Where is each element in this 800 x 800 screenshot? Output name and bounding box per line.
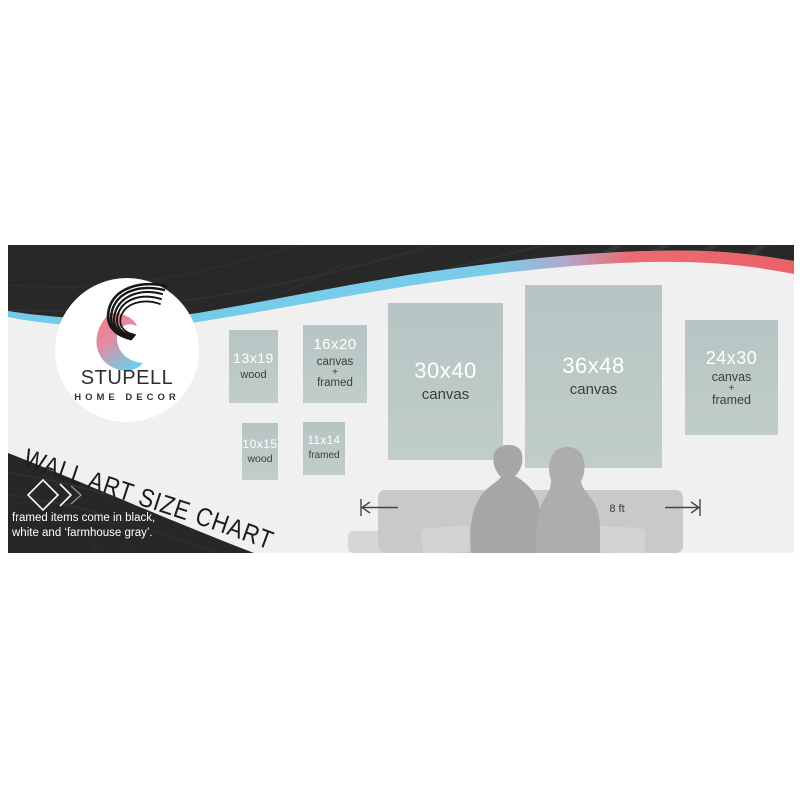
frame-material-label: wood <box>240 369 266 382</box>
frame-size-label: 10x15 <box>242 438 277 451</box>
frame-size-label: 16x20 <box>313 337 356 354</box>
size-frame-16x20: 16x20 canvas + framed <box>303 325 367 403</box>
tagline: framed items come in black, white and ‘f… <box>12 511 212 541</box>
frame-plus-label: + <box>729 385 735 393</box>
couch-cushion-left <box>421 525 471 553</box>
tagline-line2: white and ‘farmhouse gray’. <box>12 526 212 541</box>
brand-name: STUPELL <box>55 367 199 390</box>
frame-size-label: 36x48 <box>562 354 624 379</box>
frame-plus-label: + <box>332 369 338 377</box>
frame-size-label: 11x14 <box>308 435 341 448</box>
size-frame-11x14: 11x14 framed <box>303 422 345 475</box>
frame-material-label: wood <box>247 453 272 465</box>
woman-silhouette <box>536 447 600 553</box>
size-frame-30x40: 30x40 canvas <box>388 303 503 460</box>
living-room-scene: 8 ft <box>348 440 718 553</box>
frame-material-label: framed <box>308 450 339 462</box>
frame-size-label: 24x30 <box>706 348 758 368</box>
brand-logo: STUPELL HOME DECOR <box>55 278 199 422</box>
frame-material-label: framed <box>317 377 353 391</box>
frame-size-label: 30x40 <box>414 359 476 384</box>
brand-subtitle: HOME DECOR <box>55 392 199 403</box>
man-silhouette <box>470 445 541 553</box>
tagline-line1: framed items come in black, <box>12 511 212 526</box>
frame-size-label: 13x19 <box>233 351 274 367</box>
frame-material-label: framed <box>712 393 751 408</box>
size-frame-24x30: 24x30 canvas + framed <box>685 320 778 435</box>
wall-art-size-chart-banner: WALL ART SIZE CHART STUPELL HOME DEC <box>8 245 794 553</box>
size-frame-10x15: 10x15 wood <box>242 423 278 480</box>
size-frame-13x19: 13x19 wood <box>229 330 278 403</box>
frame-material-label: canvas <box>422 386 470 404</box>
stupell-s-icon <box>81 283 171 373</box>
dimension-label: 8 ft <box>609 503 624 515</box>
frame-material-label: canvas <box>570 381 618 399</box>
